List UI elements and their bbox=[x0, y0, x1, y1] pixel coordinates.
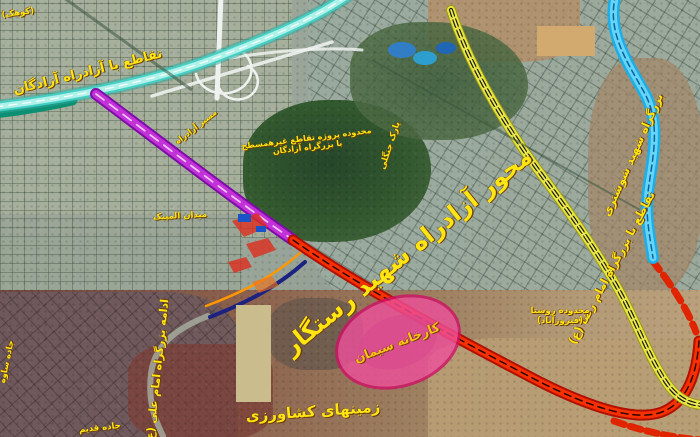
satellite-map: تقاطع با آزادراه آزادگان محور آزادراه شه… bbox=[0, 0, 700, 437]
label-village-area: محدوده روستا (فیروزآباد) bbox=[530, 307, 589, 327]
masked-rectangle-bottom-center bbox=[236, 305, 271, 402]
label-village-line2: (فیروزآباد) bbox=[530, 317, 589, 327]
azadegan-freeway-band bbox=[0, 0, 350, 113]
masked-rectangle-top-right bbox=[537, 26, 595, 56]
